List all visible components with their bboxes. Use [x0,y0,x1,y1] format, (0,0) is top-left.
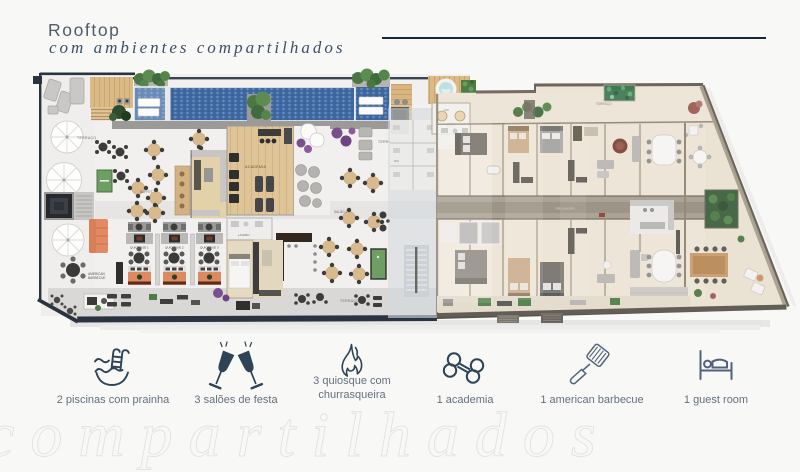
svg-text:BUFFET: BUFFET [140,190,152,194]
svg-text:LAVABO: LAVABO [238,233,250,237]
svg-text:TERRAÇO: TERRAÇO [77,136,96,140]
svg-text:SALÃO 2: SALÃO 2 [334,209,348,214]
svg-text:BARBECUE: BARBECUE [88,276,106,280]
svg-text:ACADEMIA: ACADEMIA [245,165,266,169]
